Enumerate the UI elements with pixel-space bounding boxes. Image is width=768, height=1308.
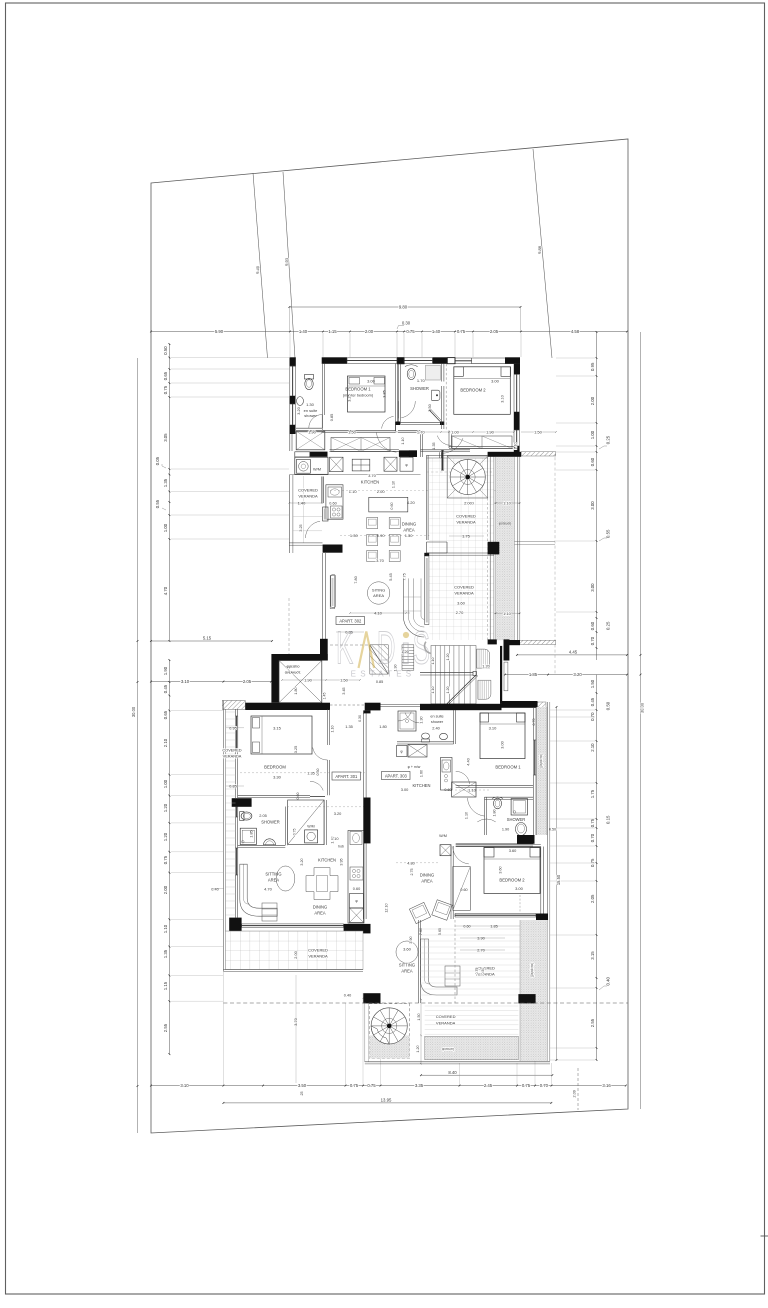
svg-text:0.65: 0.65 — [163, 371, 168, 380]
svg-text:1.90: 1.90 — [304, 678, 313, 683]
svg-text:VERANDA: VERANDA — [223, 754, 242, 759]
svg-text:2.05: 2.05 — [490, 329, 499, 334]
svg-text:1.85: 1.85 — [529, 672, 538, 677]
svg-text:0.70: 0.70 — [590, 636, 595, 645]
svg-text:0.75: 0.75 — [163, 385, 168, 394]
svg-text:2.10: 2.10 — [590, 743, 595, 752]
svg-text:1.10: 1.10 — [331, 726, 335, 733]
svg-text:0.75: 0.75 — [457, 329, 466, 334]
svg-text:SITTING: SITTING — [399, 963, 415, 968]
svg-text:4.40: 4.40 — [467, 758, 471, 765]
svg-text:φρεατιο: φρεατιο — [287, 665, 300, 669]
svg-text:1.80: 1.80 — [379, 724, 387, 729]
svg-text:3.85: 3.85 — [383, 390, 387, 397]
svg-text:0.65: 0.65 — [163, 710, 168, 719]
svg-text:2.05: 2.05 — [590, 894, 595, 903]
svg-text:4.58: 4.58 — [571, 329, 580, 334]
svg-text:2.05: 2.05 — [243, 679, 252, 684]
svg-text:3.60: 3.60 — [403, 947, 412, 952]
svg-text:2.00: 2.00 — [163, 885, 168, 894]
svg-text:0.60: 0.60 — [353, 887, 360, 891]
svg-text:BEDROOM 1: BEDROOM 1 — [345, 386, 371, 391]
svg-text:0.75: 0.75 — [475, 968, 479, 975]
svg-text:DINING: DINING — [420, 873, 434, 878]
svg-text:0.45: 0.45 — [590, 697, 595, 706]
svg-text:1.40: 1.40 — [299, 329, 308, 334]
svg-text:30.00: 30.00 — [131, 706, 136, 717]
svg-text:0.60: 0.60 — [590, 621, 595, 630]
svg-text:3.20: 3.20 — [300, 858, 304, 865]
svg-text:COVERED: COVERED — [454, 585, 474, 590]
svg-text:φ + m/w: φ + m/w — [408, 765, 421, 769]
svg-text:3.20: 3.20 — [573, 672, 582, 677]
svg-text:SITTING: SITTING — [265, 872, 281, 877]
svg-text:0.95: 0.95 — [590, 362, 595, 371]
svg-text:3.00: 3.00 — [590, 501, 595, 510]
svg-text:COVERED: COVERED — [436, 1014, 456, 1019]
svg-text:1.10: 1.10 — [465, 812, 469, 819]
svg-text:2.70: 2.70 — [456, 610, 465, 615]
svg-text:0.75: 0.75 — [163, 855, 168, 864]
svg-text:0.75: 0.75 — [522, 1083, 531, 1088]
svg-text:0.25: 0.25 — [606, 435, 611, 444]
svg-text:1.80: 1.80 — [294, 687, 298, 694]
svg-text:1.50: 1.50 — [590, 679, 595, 688]
svg-text:2.75: 2.75 — [410, 869, 414, 876]
svg-text:0.70: 0.70 — [590, 833, 595, 842]
svg-text:0.30: 0.30 — [358, 715, 362, 722]
svg-text:1.00: 1.00 — [590, 430, 595, 439]
svg-text:K: K — [336, 622, 353, 674]
svg-text:0.75: 0.75 — [590, 858, 595, 867]
svg-text:2.00: 2.00 — [377, 489, 386, 494]
svg-text:1.40: 1.40 — [432, 329, 441, 334]
svg-text:1.10: 1.10 — [514, 442, 518, 449]
svg-text:1.70: 1.70 — [417, 430, 426, 435]
svg-text:DINING: DINING — [313, 905, 327, 910]
svg-text:0.40: 0.40 — [211, 887, 218, 891]
svg-text:0.55: 0.55 — [606, 529, 611, 538]
svg-text:1.20: 1.20 — [163, 803, 168, 812]
svg-text:COVERED: COVERED — [298, 488, 318, 493]
svg-text:6.88: 6.88 — [537, 245, 543, 254]
svg-text:2.00: 2.00 — [590, 396, 595, 405]
svg-text:S: S — [413, 622, 430, 674]
svg-text:AREA: AREA — [268, 878, 279, 883]
svg-text:AREA: AREA — [421, 879, 432, 884]
svg-text:1.10: 1.10 — [503, 501, 512, 506]
svg-text:4.80: 4.80 — [407, 861, 415, 866]
svg-text:0.40: 0.40 — [606, 977, 611, 986]
svg-text:VERANDA: VERANDA — [456, 520, 476, 525]
svg-text:AREA: AREA — [314, 911, 325, 916]
svg-text:1.20: 1.20 — [446, 654, 450, 661]
svg-text:0.75: 0.75 — [406, 329, 415, 334]
svg-text:shower: shower — [431, 720, 444, 724]
svg-text:0.60: 0.60 — [590, 457, 595, 466]
svg-text:2.09: 2.09 — [573, 1090, 577, 1097]
svg-text:1.90: 1.90 — [163, 666, 168, 675]
svg-text:DINING: DINING — [402, 522, 416, 527]
svg-text:3.00: 3.00 — [367, 379, 376, 384]
svg-text:0.70: 0.70 — [532, 719, 536, 726]
svg-text:1.35: 1.35 — [345, 724, 353, 729]
svg-text:VERANDA: VERANDA — [454, 591, 474, 596]
svg-text:en suite: en suite — [430, 715, 443, 719]
svg-text:2.55: 2.55 — [590, 1018, 595, 1027]
svg-text:φυτευση: φυτευση — [442, 1047, 454, 1051]
svg-text:2.10: 2.10 — [163, 738, 168, 747]
svg-text:3.20: 3.20 — [334, 811, 342, 816]
svg-text:BEDROOM 1: BEDROOM 1 — [495, 765, 521, 770]
svg-text:ESTATES: ESTATES — [351, 670, 416, 679]
svg-text:SHOWER: SHOWER — [410, 386, 429, 391]
svg-text:ανελκυστ.: ανελκυστ. — [285, 671, 302, 675]
svg-text:3.60: 3.60 — [499, 866, 503, 873]
svg-text:APART. 303: APART. 303 — [385, 774, 408, 779]
svg-text:1.50: 1.50 — [417, 1013, 421, 1020]
svg-text:1.10: 1.10 — [349, 489, 358, 494]
svg-text:0.60: 0.60 — [390, 502, 394, 509]
svg-text:12.10: 12.10 — [385, 903, 389, 912]
svg-text:30.00: 30.00 — [640, 702, 645, 713]
svg-text:3.00: 3.00 — [401, 787, 409, 792]
svg-text:1.00: 1.00 — [451, 430, 460, 435]
svg-text:8.40: 8.40 — [448, 1070, 457, 1075]
svg-text:1.45: 1.45 — [323, 693, 327, 700]
svg-text:W/M: W/M — [313, 467, 321, 472]
svg-text:BEDROOM: BEDROOM — [264, 765, 286, 770]
svg-text:15.50: 15.50 — [556, 874, 561, 885]
svg-text:3.35: 3.35 — [415, 1083, 424, 1088]
svg-text:0.05: 0.05 — [155, 456, 160, 465]
svg-text:3.25: 3.25 — [348, 394, 352, 401]
svg-text:1.10: 1.10 — [163, 924, 168, 933]
svg-text:0.85: 0.85 — [376, 680, 383, 684]
svg-text:3.95: 3.95 — [340, 858, 344, 865]
svg-text:9.80: 9.80 — [399, 305, 408, 310]
svg-text:5.90: 5.90 — [215, 329, 224, 334]
svg-text:3.70: 3.70 — [368, 473, 377, 478]
svg-text:3.05: 3.05 — [163, 433, 168, 442]
svg-text:1.90: 1.90 — [502, 828, 509, 832]
svg-text:1.35: 1.35 — [163, 478, 168, 487]
svg-text:2.05: 2.05 — [259, 813, 267, 818]
svg-text:3.25: 3.25 — [294, 746, 298, 753]
svg-text:(βεράντα): (βεράντα) — [539, 754, 543, 768]
svg-text:3.30: 3.30 — [273, 775, 282, 780]
svg-text:AREA: AREA — [401, 969, 412, 974]
svg-text:KITCHEN: KITCHEN — [413, 783, 431, 788]
svg-text:3.70: 3.70 — [376, 558, 385, 563]
svg-text:1.15: 1.15 — [328, 329, 337, 334]
svg-text:1.15: 1.15 — [163, 981, 168, 990]
svg-text:0.50: 0.50 — [163, 346, 168, 355]
svg-text:3.90: 3.90 — [409, 936, 413, 943]
svg-text:0.50: 0.50 — [481, 968, 485, 975]
svg-text:4.70: 4.70 — [264, 886, 273, 891]
svg-text:1.75: 1.75 — [590, 789, 595, 798]
svg-text:APART. 301: APART. 301 — [335, 774, 358, 779]
svg-text:SITING: SITING — [372, 588, 385, 593]
svg-text:3.60: 3.60 — [509, 848, 517, 853]
svg-text:VERANDA: VERANDA — [298, 494, 318, 499]
svg-text:VERANDA: VERANDA — [436, 1021, 456, 1026]
svg-text:COVERED: COVERED — [308, 948, 328, 953]
svg-text:7.80: 7.80 — [354, 576, 358, 583]
svg-text:hob: hob — [338, 845, 344, 849]
svg-text:SHOWER: SHOWER — [507, 817, 525, 822]
svg-text:3.00: 3.00 — [590, 583, 595, 592]
svg-text:6.93: 6.93 — [284, 257, 290, 266]
svg-text:13.95: 13.95 — [381, 1098, 392, 1103]
svg-text:0.60: 0.60 — [329, 501, 336, 505]
svg-text:1.20: 1.20 — [446, 687, 450, 694]
svg-text:D: D — [377, 622, 396, 674]
svg-text:2.00: 2.00 — [294, 951, 298, 958]
svg-text:0.70: 0.70 — [590, 712, 595, 721]
svg-text:2.55: 2.55 — [163, 1023, 168, 1032]
svg-text:0.60: 0.60 — [296, 793, 300, 800]
svg-text:BEDROOM 2: BEDROOM 2 — [460, 387, 486, 392]
svg-text:VERANDA: VERANDA — [308, 954, 328, 959]
svg-text:0.55: 0.55 — [155, 499, 160, 508]
svg-text:0.50: 0.50 — [606, 701, 611, 710]
svg-text:0.75: 0.75 — [292, 829, 296, 836]
svg-text:0.25: 0.25 — [606, 621, 611, 630]
svg-text:1.50: 1.50 — [348, 430, 357, 435]
svg-text:1.10: 1.10 — [431, 687, 435, 694]
svg-text:φύτευση: φύτευση — [499, 521, 512, 525]
svg-text:1.50: 1.50 — [340, 678, 349, 683]
svg-text:(βεράντα): (βεράντα) — [530, 963, 534, 977]
svg-text:1.90: 1.90 — [308, 430, 317, 435]
svg-text:25: 25 — [300, 1092, 304, 1096]
svg-text:AREA: AREA — [403, 528, 414, 533]
svg-text:5.15: 5.15 — [203, 636, 212, 641]
svg-text:0.40: 0.40 — [344, 993, 351, 997]
svg-text:W/M: W/M — [307, 825, 314, 829]
svg-text:1.20: 1.20 — [163, 832, 168, 841]
svg-text:4.45: 4.45 — [569, 650, 578, 655]
svg-text:3.15: 3.15 — [590, 951, 595, 960]
svg-text:0.85: 0.85 — [229, 785, 236, 789]
svg-text:3.00: 3.00 — [515, 886, 524, 891]
svg-text:3.25: 3.25 — [299, 524, 303, 531]
svg-text:0.75: 0.75 — [590, 818, 595, 827]
svg-text:KITCHEN: KITCHEN — [361, 480, 379, 485]
svg-text:BEDROOM 2: BEDROOM 2 — [499, 878, 525, 883]
svg-text:1.60: 1.60 — [420, 770, 424, 777]
svg-text:3.00: 3.00 — [501, 741, 505, 748]
svg-text:3.60: 3.60 — [457, 601, 466, 606]
svg-text:1.90: 1.90 — [486, 430, 495, 435]
svg-text:6.40: 6.40 — [255, 265, 261, 274]
svg-text:4.70: 4.70 — [163, 586, 168, 595]
svg-text:1.20: 1.20 — [416, 1045, 420, 1052]
svg-text:1.10: 1.10 — [503, 611, 512, 616]
svg-text:0.85: 0.85 — [330, 414, 334, 421]
svg-text:0.15: 0.15 — [606, 815, 611, 824]
svg-text:3.15: 3.15 — [273, 726, 282, 731]
svg-text:5.45: 5.45 — [389, 573, 393, 580]
svg-text:1.10: 1.10 — [392, 481, 396, 488]
svg-text:1.00: 1.00 — [163, 523, 168, 532]
svg-text:1.10: 1.10 — [331, 836, 339, 841]
svg-text:3.10: 3.10 — [501, 395, 505, 402]
svg-text:AREA: AREA — [373, 593, 384, 598]
svg-text:3.50: 3.50 — [298, 1083, 307, 1088]
svg-text:0.30: 0.30 — [316, 769, 320, 776]
svg-text:1.35: 1.35 — [432, 442, 436, 449]
svg-text:3.20: 3.20 — [297, 407, 301, 414]
svg-text:2.00: 2.00 — [365, 329, 374, 334]
svg-text:2.00: 2.00 — [464, 501, 473, 506]
svg-text:1.10: 1.10 — [431, 658, 435, 665]
svg-text:3.16: 3.16 — [602, 1083, 611, 1088]
svg-text:COVERED: COVERED — [222, 748, 241, 753]
svg-text:W/M: W/M — [439, 834, 447, 838]
svg-text:1.70: 1.70 — [417, 378, 426, 383]
svg-text:shower: shower — [304, 413, 317, 418]
svg-text:3.10: 3.10 — [180, 1083, 189, 1088]
svg-text:3.10: 3.10 — [181, 679, 190, 684]
svg-text:4.20: 4.20 — [407, 500, 416, 505]
svg-text:0.60: 0.60 — [463, 925, 470, 929]
svg-text:0.75: 0.75 — [350, 1083, 359, 1088]
svg-text:1.00: 1.00 — [163, 779, 168, 788]
svg-text:1.85: 1.85 — [249, 830, 253, 837]
svg-text:0.30: 0.30 — [402, 321, 411, 326]
svg-text:1.30: 1.30 — [306, 402, 315, 407]
svg-text:0.45: 0.45 — [163, 684, 168, 693]
svg-text:0.70: 0.70 — [540, 1083, 549, 1088]
svg-text:1.20: 1.20 — [482, 664, 490, 669]
svg-text:COVERED: COVERED — [456, 514, 476, 519]
svg-text:1.10: 1.10 — [401, 437, 405, 444]
svg-text:3.00: 3.00 — [491, 379, 500, 384]
svg-text:2.40: 2.40 — [432, 726, 440, 731]
svg-text:0.95: 0.95 — [229, 727, 236, 731]
svg-text:1.35: 1.35 — [307, 770, 315, 775]
svg-text:1.30: 1.30 — [420, 716, 424, 723]
svg-text:1.50: 1.50 — [534, 430, 543, 435]
svg-text:SHOWER: SHOWER — [261, 820, 279, 825]
svg-text:KITCHEN: KITCHEN — [318, 858, 336, 863]
svg-text:2.45: 2.45 — [484, 1083, 493, 1088]
svg-text:1.35: 1.35 — [163, 949, 168, 958]
svg-text:0.75: 0.75 — [367, 1083, 376, 1088]
svg-text:3.10: 3.10 — [489, 726, 498, 731]
svg-text:1.80: 1.80 — [493, 810, 497, 817]
svg-text:3.45: 3.45 — [342, 687, 346, 694]
